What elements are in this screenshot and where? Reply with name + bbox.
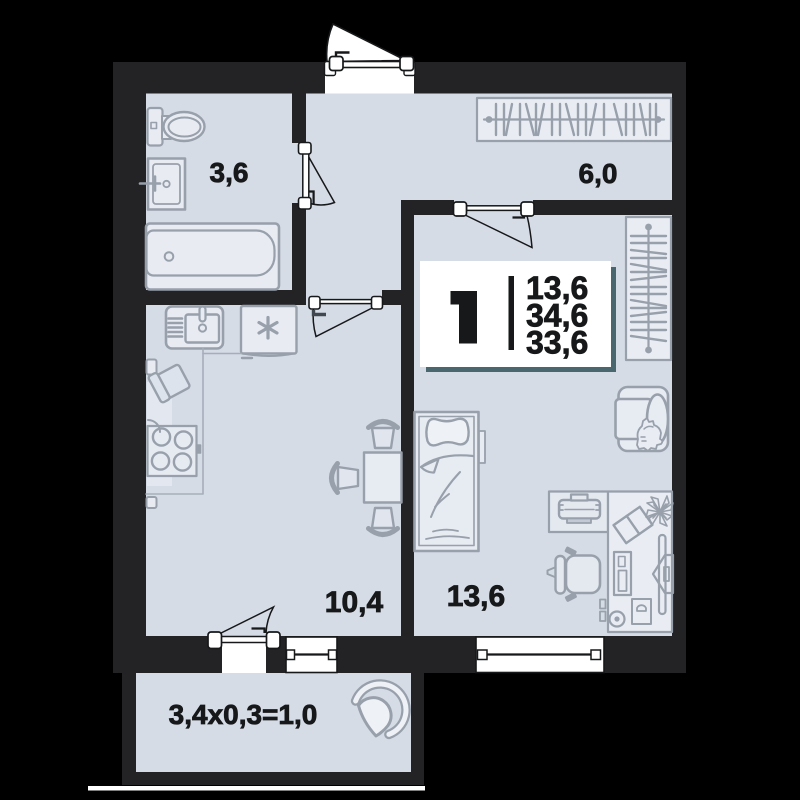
- svg-text:13,6: 13,6: [447, 580, 505, 613]
- svg-text:33,6: 33,6: [526, 325, 588, 361]
- svg-text:3,4x0,3=1,0: 3,4x0,3=1,0: [169, 699, 318, 730]
- svg-text:6,0: 6,0: [579, 158, 618, 189]
- svg-text:10,4: 10,4: [325, 586, 384, 619]
- svg-text:3,6: 3,6: [210, 157, 249, 188]
